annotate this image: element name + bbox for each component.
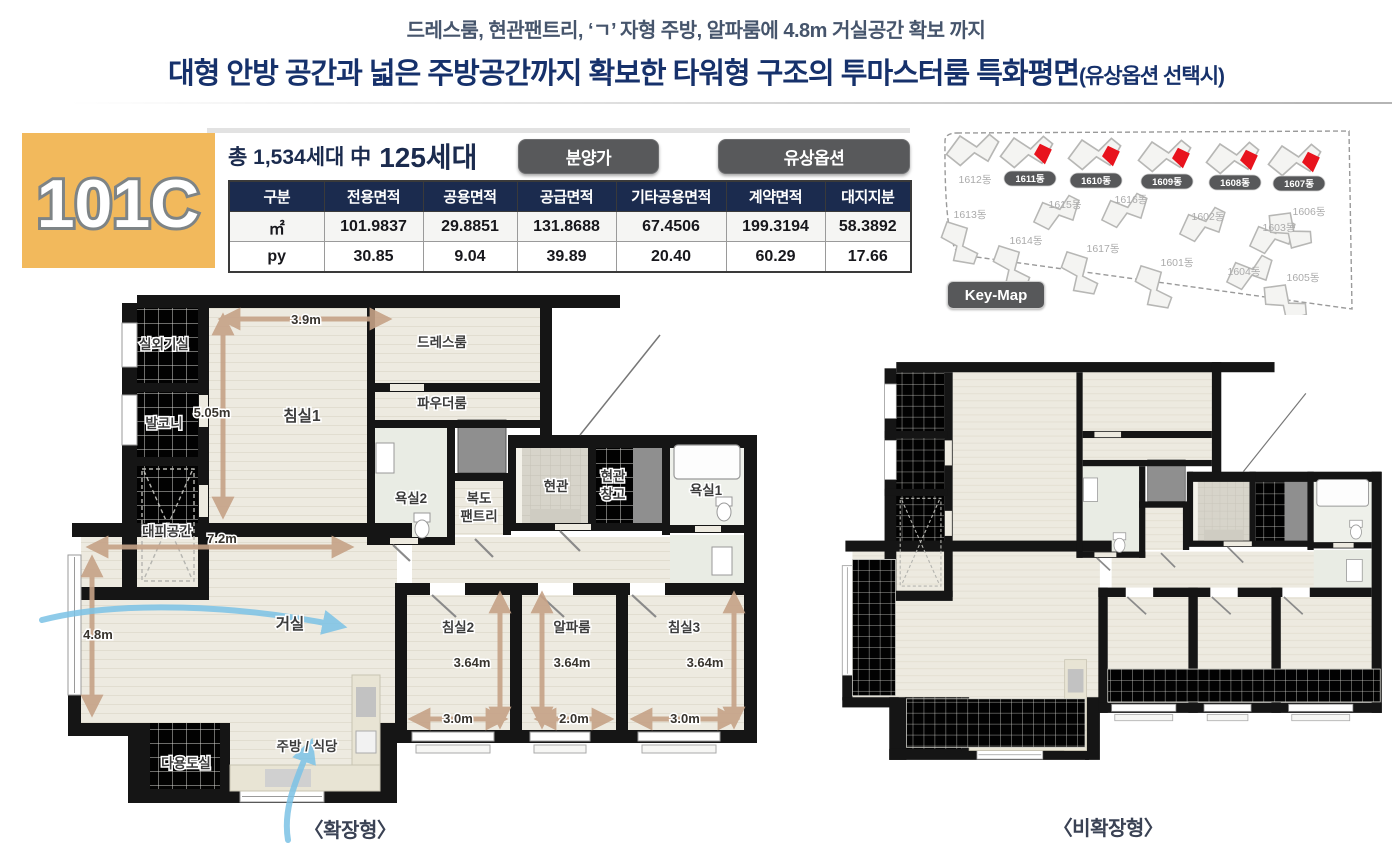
price-button[interactable]: 분양가 — [518, 139, 659, 174]
room-label: 파우더룸 — [417, 396, 467, 411]
col-header: 대지지분 — [825, 181, 911, 212]
room-label: 발코니 — [145, 415, 182, 431]
cell: 9.04 — [423, 242, 517, 273]
room-label: 주방 / 식당 — [277, 738, 339, 754]
col-header: 공용면적 — [423, 181, 517, 212]
cell: 20.40 — [616, 242, 726, 273]
room-label: 팬트리 — [460, 509, 497, 524]
cell: 39.89 — [517, 242, 616, 273]
building-label: 1613동 — [953, 209, 986, 221]
building-label: 1612동 — [958, 174, 991, 186]
dim-label: 5.05m — [194, 405, 231, 420]
unit-type-badge: 101C — [22, 133, 215, 268]
dim-label: 3.64m — [687, 655, 724, 670]
room-label: 복도 — [467, 491, 492, 506]
building-label-pill: 1607동 — [1273, 176, 1325, 191]
svg-text:1608동: 1608동 — [1220, 178, 1250, 189]
room-label: 현관 — [601, 468, 626, 484]
households-summary: 총 1,534세대 中 125세대 — [228, 138, 477, 174]
col-header: 기타공용면적 — [616, 181, 726, 212]
building-label-pill: 1608동 — [1209, 175, 1261, 190]
row-label: py — [229, 242, 324, 273]
room-label: 창고 — [601, 486, 626, 502]
building-label: 1615동 — [1048, 199, 1081, 211]
building-label: 1616동 — [1114, 194, 1147, 206]
table-row: py 30.85 9.04 39.89 20.40 60.29 17.66 — [229, 242, 911, 273]
cell: 29.8851 — [423, 212, 517, 242]
building-label: 1614동 — [1009, 235, 1042, 247]
dim-label: 2.0m — [559, 711, 589, 726]
dim-label: 3.0m — [443, 711, 473, 726]
room-label: 욕실1 — [690, 483, 723, 498]
col-header: 공급면적 — [517, 181, 616, 212]
building-label: 1605동 — [1286, 272, 1319, 284]
page-title-text: 대형 안방 공간과 넓은 주방공간까지 확보한 타워형 구조의 투마스터룸 특화… — [168, 58, 1079, 90]
room-label: 침실2 — [442, 620, 474, 635]
cell: 67.4506 — [616, 212, 726, 242]
building-label: 1606동 — [1292, 206, 1325, 218]
households-prefix: 총 1,534세대 中 — [228, 141, 371, 171]
room-label: 거실 — [276, 615, 305, 633]
room-label: 대피공간 — [142, 523, 192, 539]
households-count: 125세대 — [379, 136, 477, 176]
building-label-pill: 1609동 — [1141, 174, 1193, 189]
room-label: 드레스룸 — [417, 335, 467, 350]
svg-text:1610동: 1610동 — [1081, 176, 1111, 187]
floorplan-non-expanded — [836, 362, 1392, 785]
cell: 101.9837 — [324, 212, 423, 242]
cell: 58.3892 — [825, 212, 911, 242]
cell: 17.66 — [825, 242, 911, 273]
col-header: 계약면적 — [726, 181, 825, 212]
page-title: 대형 안방 공간과 넓은 주방공간까지 확보한 타워형 구조의 투마스터룸 특화… — [0, 50, 1392, 92]
room-label: 알파룸 — [553, 620, 591, 635]
svg-text:1607동: 1607동 — [1284, 179, 1314, 190]
caption-non-expanded: 〈비확장형〉 — [928, 812, 1288, 841]
building-label: 1603동 — [1262, 222, 1295, 234]
page-title-suffix: (유상옵션 선택시) — [1079, 65, 1224, 88]
page-subtitle: 드레스룸, 현관팬트리, ‘ㄱ’ 자형 주방, 알파룸에 4.8m 거실공간 확… — [0, 14, 1392, 43]
room-label: 침실1 — [283, 406, 321, 425]
dim-label: 7.2m — [207, 531, 237, 546]
caption-expanded: 〈확장형〉 — [170, 814, 530, 843]
keymap-title-badge: Key-Map — [947, 281, 1045, 309]
room-label: 실외기실 — [139, 336, 189, 352]
building-label: 1601동 — [1160, 257, 1193, 269]
col-header: 구분 — [229, 181, 324, 212]
flyer-page: 드레스룸, 현관팬트리, ‘ㄱ’ 자형 주방, 알파룸에 4.8m 거실공간 확… — [0, 0, 1392, 858]
cell: 60.29 — [726, 242, 825, 273]
svg-text:1611동: 1611동 — [1015, 174, 1045, 185]
dim-label: 3.0m — [670, 711, 700, 726]
building-label: 1602동 — [1191, 211, 1224, 223]
table-row: ㎡ 101.9837 29.8851 131.8688 67.4506 199.… — [229, 212, 911, 242]
row-label: ㎡ — [229, 212, 324, 242]
dim-label: 3.64m — [554, 655, 591, 670]
room-label: 침실3 — [668, 620, 701, 635]
dim-label: 3.9m — [291, 312, 321, 327]
dim-label: 4.8m — [83, 627, 113, 642]
room-label: 욕실2 — [395, 491, 427, 506]
area-table: 구분 전용면적 공용면적 공급면적 기타공용면적 계약면적 대지지분 ㎡ 101… — [228, 180, 912, 273]
building-label-pill: 1611동 — [1004, 171, 1056, 186]
room-label: 다용도실 — [161, 756, 211, 771]
col-header: 전용면적 — [324, 181, 423, 212]
floorplan-expanded: 실외기실 발코니 대피공간 침실1 드레스룸 파우더룸 욕실2 복도 팬트리 현… — [60, 295, 770, 835]
room-label: 현관 — [544, 478, 569, 494]
header-divider — [0, 102, 1392, 104]
area-table-header-row: 구분 전용면적 공용면적 공급면적 기타공용면적 계약면적 대지지분 — [229, 181, 911, 212]
svg-text:1609동: 1609동 — [1152, 177, 1182, 188]
building-label-pill: 1610동 — [1070, 173, 1122, 188]
building-label: 1604동 — [1227, 266, 1260, 278]
cell: 30.85 — [324, 242, 423, 273]
unit-code-svg: 101C — [22, 133, 215, 268]
unit-code-text: 101C — [37, 166, 200, 242]
cell: 131.8688 — [517, 212, 616, 242]
dim-label: 3.64m — [454, 655, 491, 670]
info-top-strip — [207, 128, 910, 133]
paid-option-button[interactable]: 유상옵션 — [718, 139, 910, 174]
cell: 199.3194 — [726, 212, 825, 242]
building-label: 1617동 — [1086, 243, 1119, 255]
